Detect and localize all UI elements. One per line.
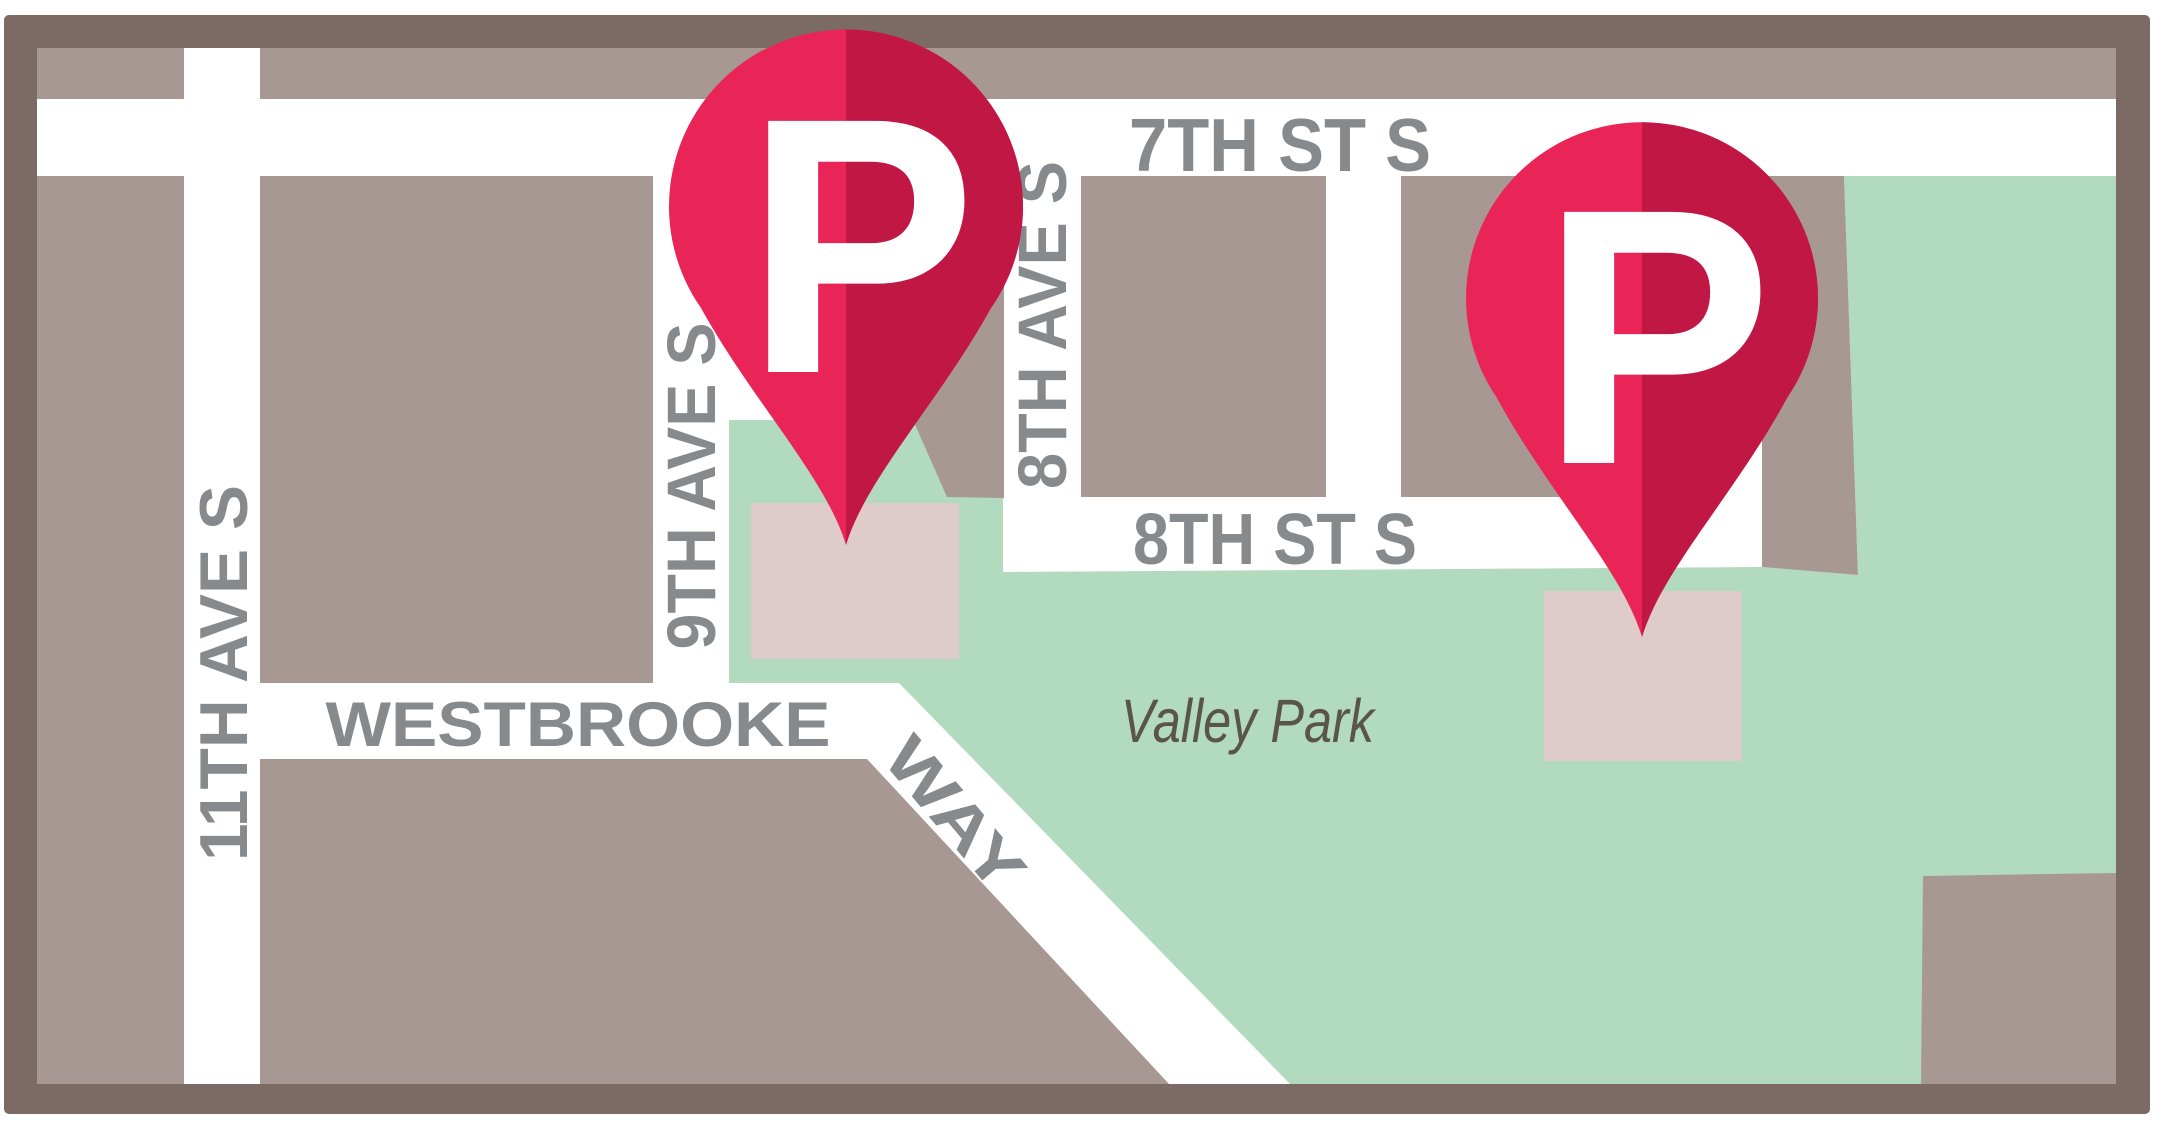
svg-text:WESTBROOKE: WESTBROOKE [326,690,831,760]
svg-text:11TH AVE S: 11TH AVE S [186,485,262,861]
svg-text:P: P [745,43,976,450]
svg-text:9TH AVE S: 9TH AVE S [653,323,730,650]
svg-text:Valley Park: Valley Park [1121,687,1377,755]
svg-text:7TH ST S: 7TH ST S [1129,103,1431,187]
svg-text:8TH ST S: 8TH ST S [1133,500,1417,580]
svg-text:P: P [1541,134,1772,541]
